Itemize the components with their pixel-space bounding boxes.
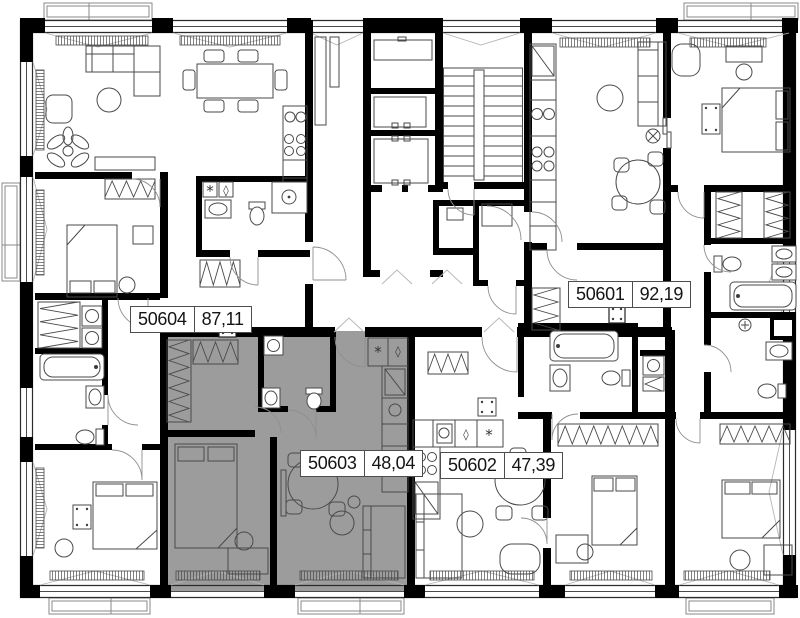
unit-area: 47,39 [505,453,563,478]
staircase [443,68,523,182]
unit-area: 48,04 [365,451,423,476]
unit-50604-region[interactable] [33,33,305,327]
unit-50604-region-lower[interactable] [33,330,160,585]
unit-50601-region-lower[interactable] [675,330,783,585]
unit-label-50602[interactable]: 50602 47,39 [440,452,563,479]
unit-label-50601[interactable]: 50601 92,19 [568,281,691,308]
unit-number: 50604 [131,307,195,332]
floor-plan: *◊ *◊ ◊* [0,0,800,618]
elevators [374,37,432,185]
threshold-marks [334,270,514,332]
unit-number: 50602 [441,453,505,478]
unit-label-50604[interactable]: 50604 87,11 [130,306,252,333]
unit-area: 92,19 [633,282,691,307]
unit-number: 50603 [301,451,365,476]
unit-label-50603[interactable]: 50603 48,04 [300,450,423,477]
refuse-bin [447,208,463,220]
floor-plan-drawing: *◊ *◊ ◊* [0,0,800,618]
unit-number: 50601 [569,282,633,307]
unit-area: 87,11 [195,307,251,332]
